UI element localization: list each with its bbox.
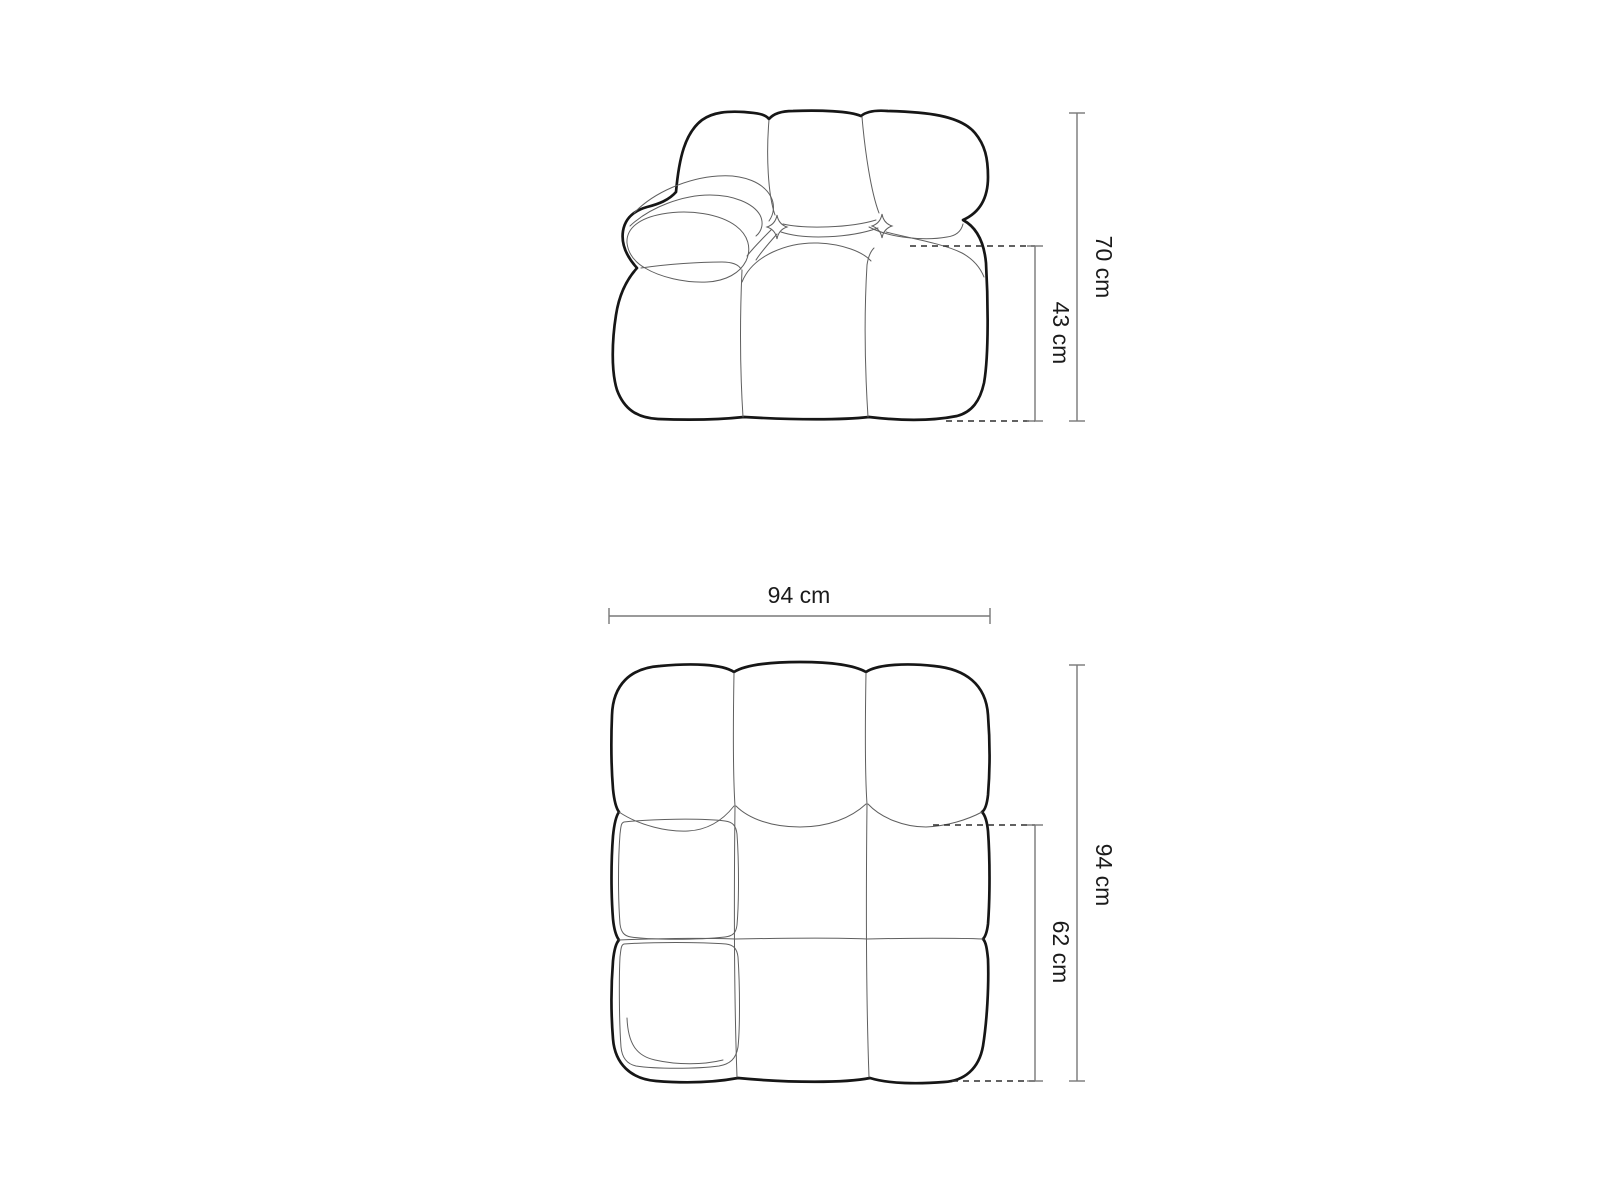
front-back-seam-left [768,120,775,215]
top-depth-dimension-line [1069,665,1085,1081]
front-left-seat-top-edge [641,262,741,269]
front-armrest-outer-curve [634,176,773,221]
front-seat-seam-right [865,248,874,417]
front-armrest-front-oval [627,212,749,282]
front-total-height-label: 70 cm [1091,236,1117,299]
front-total-height-dimension-line [1069,113,1085,421]
front-seat-seam-left [741,270,743,417]
sofa-dimension-diagram-page: 70 cm 43 cm [0,0,1600,1200]
top-column-seam-left [733,673,737,1077]
dimension-diagram-canvas: 70 cm 43 cm [0,0,1600,1200]
front-middle-seat-top-edge [742,243,871,282]
sofa-front-view-drawing [613,111,988,420]
sofa-top-view-drawing [611,662,989,1083]
front-tuft-pinch-line-1 [747,230,771,256]
front-view-dimensions: 70 cm 43 cm [910,113,1117,421]
front-under-right-back-arc [869,224,963,239]
front-armrest-middle-curve [630,195,762,236]
top-depth-label: 94 cm [1091,844,1117,907]
front-seatback-arc-upper [783,220,876,227]
top-width-label: 94 cm [768,582,831,608]
top-back-cushion-arc-right [868,804,982,827]
top-width-dimension-line [609,608,990,624]
top-view-outline [611,662,989,1083]
top-seat-depth-dimension-line [1027,825,1043,1081]
top-column-seam-right [865,673,869,1077]
top-armrest-bottom-inner-arc [627,1018,723,1064]
front-view-outline [613,111,988,420]
front-seat-height-dimension-line [1027,246,1043,421]
front-back-seam-right [862,117,879,213]
front-tuft-pinch-line-2 [756,234,777,260]
top-back-cushion-arc-middle [736,804,866,827]
top-back-cushion-arc-left [619,806,734,831]
top-seat-depth-label: 62 cm [1048,921,1074,984]
top-armrest-middle-inner-outline [619,819,739,939]
front-seatback-arc-lower [781,228,878,237]
top-armrest-bottom-inner-outline [619,943,739,1069]
front-seat-height-label: 43 cm [1048,302,1074,365]
